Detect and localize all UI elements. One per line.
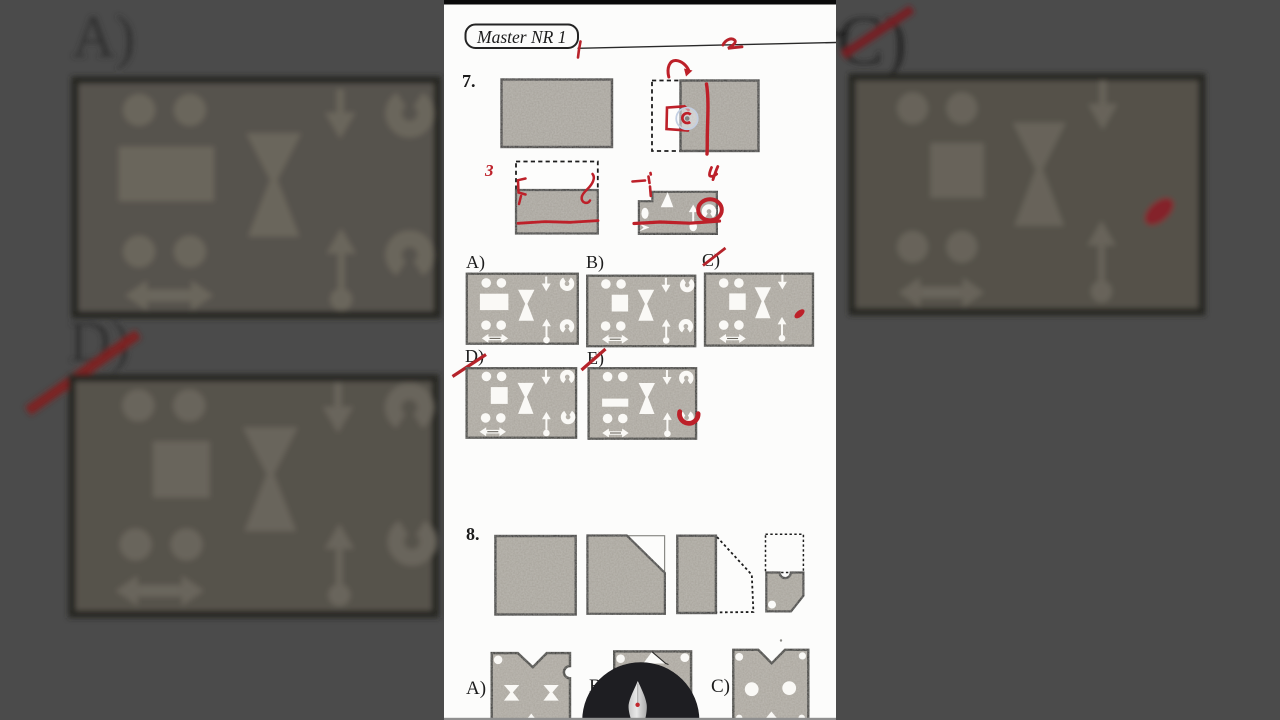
svg-text:A): A) [466,252,485,273]
svg-text:3: 3 [484,161,494,180]
svg-text:8.: 8. [466,524,480,544]
svg-text:C): C) [711,676,730,697]
svg-text:B): B) [586,252,604,273]
svg-text:A): A) [72,4,135,70]
svg-text:A): A) [466,678,486,699]
svg-text:Master NR 1: Master NR 1 [476,27,566,47]
svg-text:7.: 7. [462,71,476,91]
